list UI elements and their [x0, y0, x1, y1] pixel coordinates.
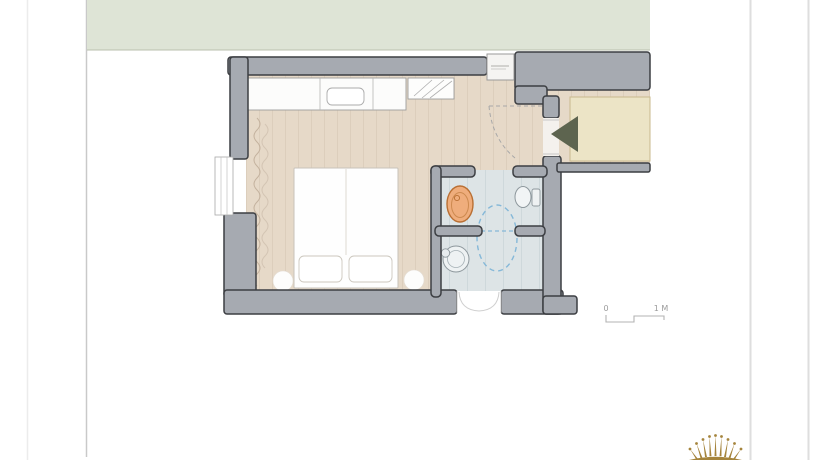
- vestibule-wall-step: [515, 86, 547, 104]
- left-wall-upper: [230, 57, 248, 159]
- scale-bar-line: [606, 315, 664, 322]
- double-bed: [294, 168, 398, 288]
- service-duct: [487, 54, 514, 80]
- window: [215, 157, 233, 215]
- nightstand-left: [273, 271, 293, 291]
- bathroom-exterior-door: [457, 291, 501, 313]
- entrance-jamb-upper: [543, 96, 559, 118]
- bottom-right-corner-wall: [543, 296, 577, 314]
- floor-plan-drawing: 0 1 M: [0, 0, 840, 460]
- nightstand-right: [404, 270, 424, 290]
- top-wall: [228, 57, 487, 75]
- toilet: [515, 187, 540, 208]
- corridor-bottom-wall: [557, 163, 650, 172]
- floor-plan-image[interactable]: 0 1 M: [0, 0, 840, 460]
- crown-logo-icon: [689, 434, 743, 460]
- top-wall-right: [515, 52, 650, 90]
- scale-label-one-meter: 1 M: [654, 304, 669, 313]
- bathroom-wall-top-right: [513, 166, 547, 177]
- bathtub: [447, 186, 473, 222]
- scale-label-zero: 0: [603, 304, 608, 313]
- exterior-area: [87, 0, 650, 50]
- bottom-wall-left: [224, 290, 457, 314]
- pillow-left: [299, 256, 342, 282]
- pillow-right: [349, 256, 392, 282]
- bathroom-wall-mid-left: [435, 226, 482, 236]
- bathroom-wall-mid-right: [515, 226, 545, 236]
- corridor-mat: [570, 97, 650, 161]
- scale-bar: 0 1 M: [603, 304, 668, 322]
- right-wall: [543, 156, 561, 314]
- wardrobe-counter: [248, 78, 406, 110]
- left-wall-lower: [224, 213, 256, 297]
- counter-tray: [327, 88, 364, 105]
- luggage-bench: [408, 78, 454, 99]
